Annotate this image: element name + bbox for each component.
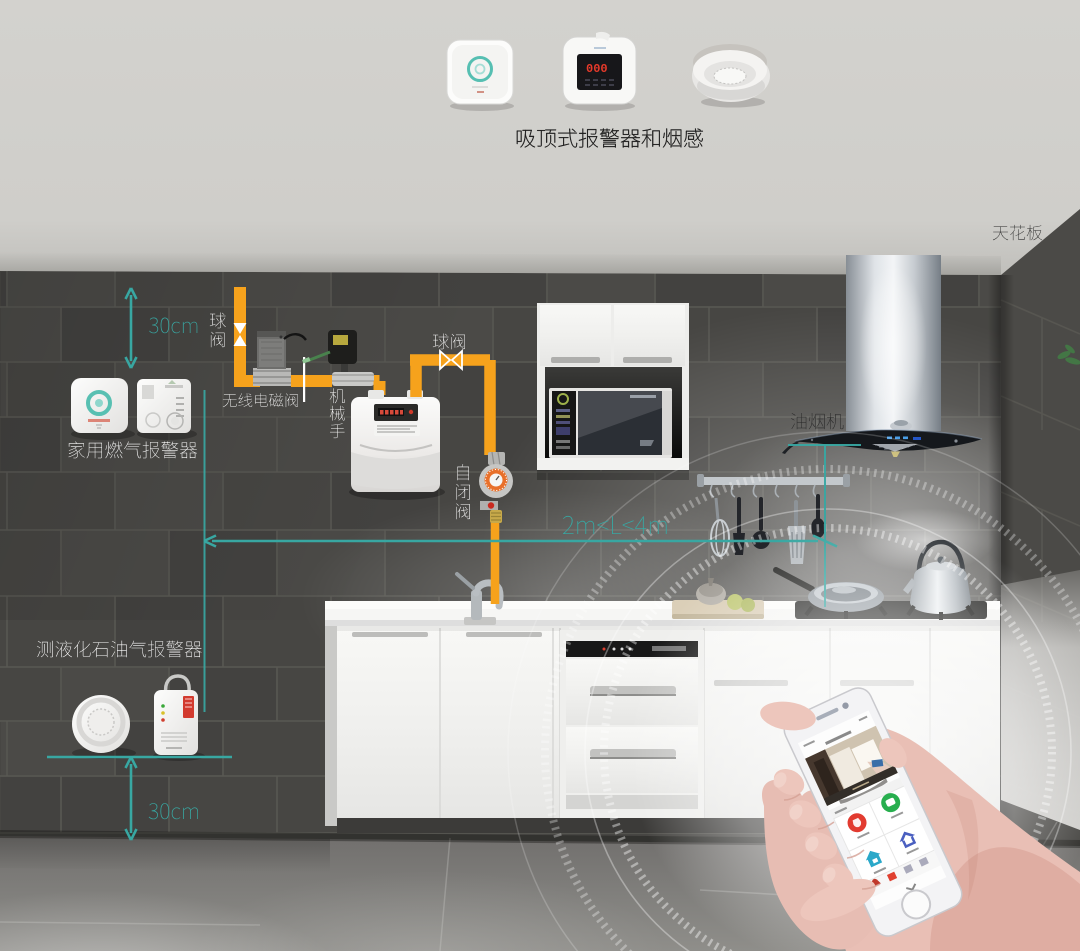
svg-text:000: 000 bbox=[586, 62, 608, 76]
